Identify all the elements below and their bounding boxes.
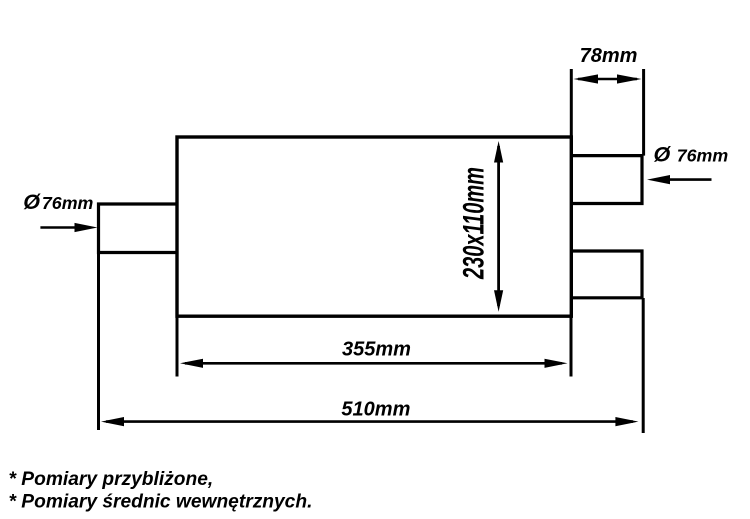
svg-text:* Pomiary przybliżone,: * Pomiary przybliżone,: [9, 469, 214, 490]
svg-text:230x110mm: 230x110mm: [458, 167, 491, 280]
svg-text:78mm: 78mm: [580, 45, 638, 67]
svg-text:355mm: 355mm: [342, 339, 411, 361]
svg-text:* Pomiary średnic wewnętrznych: * Pomiary średnic wewnętrznych.: [9, 492, 313, 513]
svg-text:Ø76mm: Ø76mm: [654, 143, 729, 167]
svg-text:Ø76mm: Ø76mm: [23, 190, 93, 214]
svg-text:510mm: 510mm: [341, 399, 410, 421]
